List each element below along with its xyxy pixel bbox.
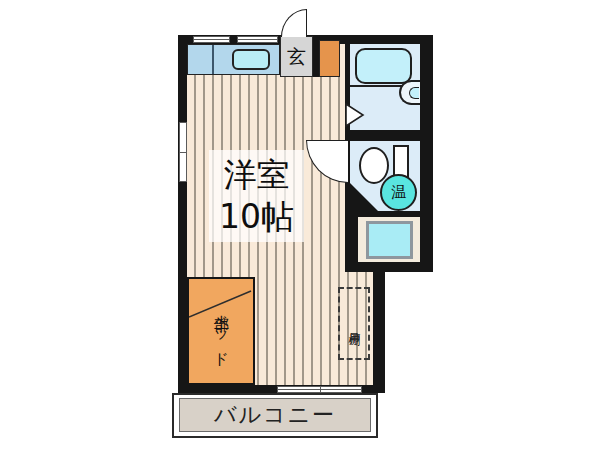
window-balcony-door: [277, 386, 362, 393]
window-top-right: [237, 36, 278, 43]
washbasin-bowl: [409, 87, 419, 99]
floorplan: 玄 温 上部ベッド 吊戸棚 洋室 10帖 バル: [0, 0, 600, 450]
bathtub: [355, 48, 412, 84]
balcony-floor: バルコニー: [179, 398, 371, 432]
room-size: 10帖: [209, 196, 304, 238]
hanging-cupboard: 吊戸棚: [338, 287, 370, 360]
washer-pan: [366, 221, 413, 259]
window-top-left: [193, 36, 230, 43]
balcony: バルコニー: [172, 393, 378, 438]
balcony-label: バルコニー: [214, 400, 336, 430]
entrance-area: 玄: [280, 36, 313, 77]
bathroom-door-mark-icon: [345, 103, 365, 127]
bathtub-ledge-line: [350, 85, 403, 87]
kitchen-sink: [232, 49, 270, 70]
shoe-cabinet: [319, 40, 340, 77]
room-label: 洋室 10帖: [209, 150, 304, 242]
window-left-wall: [179, 122, 187, 182]
loft-bed-label: 上部ベッド: [212, 303, 231, 359]
room-name: 洋室: [209, 154, 304, 196]
water-heater-badge: 温: [380, 174, 417, 211]
kitchen-counter-divider: [212, 45, 214, 74]
water-heater-label: 温: [391, 183, 406, 202]
washbasin: [399, 80, 420, 105]
entrance-door-swing-icon: [281, 9, 307, 37]
kitchen-counter: [187, 44, 280, 75]
loft-bed: 上部ベッド: [187, 277, 255, 385]
entrance-label: 玄: [287, 44, 306, 70]
